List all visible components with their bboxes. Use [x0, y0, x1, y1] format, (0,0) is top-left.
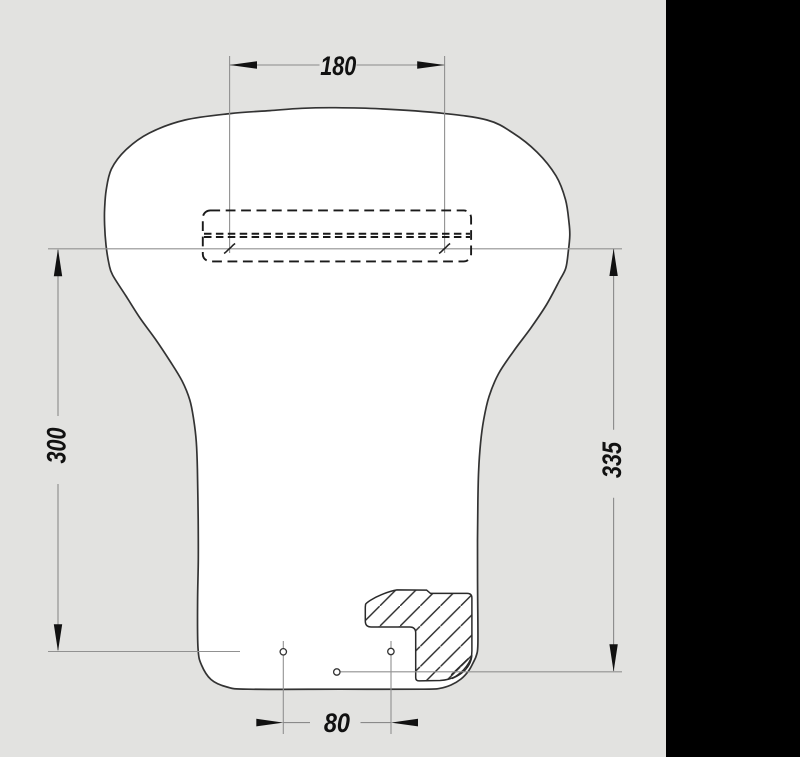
svg-text:335: 335	[598, 442, 628, 478]
svg-text:300: 300	[42, 427, 72, 463]
svg-text:180: 180	[320, 52, 356, 82]
svg-text:80: 80	[324, 708, 350, 738]
